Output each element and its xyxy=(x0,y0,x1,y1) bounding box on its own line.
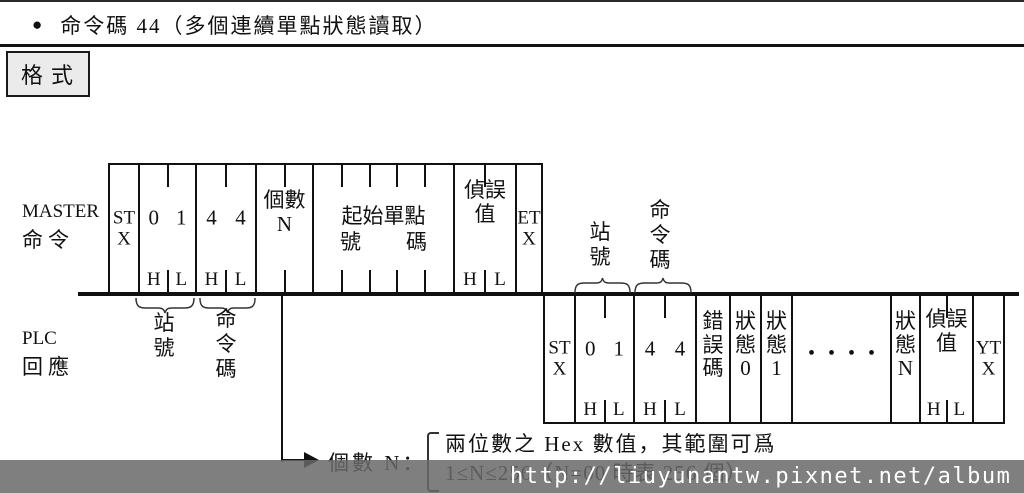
tick xyxy=(369,270,371,292)
manual-page: ● 命令碼 44（多個連續單點狀態讀取） 格式 MASTER 命令 PLC 回應… xyxy=(0,0,1024,493)
plc-etx-cell: YTX xyxy=(972,296,1003,422)
tick xyxy=(341,165,343,187)
plc-response-frame: STX 0 1 H L 4 4 H L xyxy=(543,296,1005,424)
low-byte-label: L xyxy=(168,269,196,291)
plc-status0-cell: 狀態0 xyxy=(729,296,760,422)
command-low-digit: 4 xyxy=(665,336,695,361)
master-start-point-cell: 起始單點 號 碼 xyxy=(312,165,453,292)
start-point-line1: 起始單點 xyxy=(314,202,453,228)
high-byte-label: H xyxy=(455,269,485,291)
high-byte-label: H xyxy=(921,399,947,421)
ellipsis-dots: •••• xyxy=(793,342,890,365)
checksum-label: 偵誤值 xyxy=(921,308,972,355)
checksum-label: 偵誤值 xyxy=(455,179,515,226)
master-command-annotation: 命令碼 xyxy=(214,307,238,381)
plc-error-code-cell: 錯誤碼 xyxy=(695,296,729,422)
master-row-label-cjk: 命令 xyxy=(22,228,99,253)
overbrace xyxy=(634,277,692,293)
watermark-url: http://liuyunantw.pixnet.net/album xyxy=(510,464,1011,489)
master-command-code-cell: 4 4 H L xyxy=(195,165,255,292)
plc-stx-cell: STX xyxy=(545,296,574,422)
plc-ellipsis-cell: •••• xyxy=(791,296,890,422)
station-low-digit: 1 xyxy=(605,336,634,361)
low-byte-label: L xyxy=(605,399,634,421)
status1-label: 狀態1 xyxy=(762,310,791,381)
plc-command-code-cell: 4 4 H L xyxy=(633,296,695,422)
bullet-icon: ● xyxy=(32,15,44,35)
tick xyxy=(664,400,666,422)
section-title-text: 命令碼 44（多個連續單點狀態讀取） xyxy=(60,10,437,40)
tick xyxy=(396,270,398,292)
overbrace xyxy=(574,277,631,293)
command-low-digit: 4 xyxy=(226,206,255,231)
master-row-label: MASTER 命令 xyxy=(22,201,99,253)
master-etx-cell: ETX xyxy=(515,165,541,292)
tick xyxy=(484,270,486,292)
error-code-label: 錯誤碼 xyxy=(697,310,729,381)
tick xyxy=(341,270,343,292)
tick xyxy=(167,270,169,292)
note-line1: 兩位數之 Hex 數值，其範圍可爲 xyxy=(445,428,777,458)
plc-row-label-en: PLC xyxy=(22,328,74,351)
etx-label: ETX xyxy=(517,207,541,250)
format-tab-label: 格式 xyxy=(21,58,81,90)
statusN-label: 狀態N xyxy=(892,310,919,381)
master-station-cell: 0 1 H L xyxy=(138,165,195,292)
station-high-digit: 0 xyxy=(140,206,168,231)
tick xyxy=(225,165,227,187)
start-point-label: 起始單點 號 碼 xyxy=(314,202,453,255)
tick xyxy=(396,165,398,187)
title-rule xyxy=(0,44,1024,47)
station-low-digit: 1 xyxy=(168,206,196,231)
tick xyxy=(369,165,371,187)
watermark-band: http://liuyunantw.pixnet.net/album xyxy=(0,460,1024,493)
plc-row-label-cjk: 回應 xyxy=(22,355,74,380)
etx-label: YTX xyxy=(974,338,1003,381)
high-byte-label: H xyxy=(576,399,605,421)
tick xyxy=(424,165,426,187)
plc-row-label: PLC 回應 xyxy=(22,328,74,380)
tick xyxy=(284,270,286,292)
stx-label: STX xyxy=(110,207,138,250)
command-high-digit: 4 xyxy=(635,336,665,361)
plc-station-cell: 0 1 H L xyxy=(574,296,633,422)
tick xyxy=(424,270,426,292)
format-tab: 格式 xyxy=(6,51,90,97)
stx-label: STX xyxy=(545,338,574,381)
master-stx-cell: STX xyxy=(110,165,138,292)
plc-checksum-cell: 偵誤值 H L xyxy=(919,296,972,422)
section-title: ● 命令碼 44（多個連續單點狀態讀取） xyxy=(32,10,438,40)
plc-station-annotation: 站號 xyxy=(588,220,612,270)
command-high-digit: 4 xyxy=(197,206,226,231)
tick xyxy=(225,270,227,292)
tick xyxy=(664,296,666,318)
plc-command-annotation: 命令碼 xyxy=(648,198,672,272)
master-row-label-en: MASTER xyxy=(22,201,99,224)
master-station-annotation: 站號 xyxy=(152,311,176,361)
top-edge-line xyxy=(0,0,1024,2)
plc-statusN-cell: 狀態N xyxy=(890,296,919,422)
low-byte-label: L xyxy=(485,269,515,291)
high-byte-label: H xyxy=(197,269,226,291)
high-byte-label: H xyxy=(140,269,168,291)
tick xyxy=(167,165,169,187)
tick xyxy=(604,400,606,422)
count-label: 個數N xyxy=(257,189,312,236)
master-count-cell: 個數N xyxy=(255,165,312,292)
master-command-frame: STX 0 1 H L 4 4 H L xyxy=(108,163,543,292)
low-byte-label: L xyxy=(947,399,973,421)
plc-status1-cell: 狀態1 xyxy=(760,296,791,422)
start-point-no: 號 xyxy=(340,229,361,255)
tick xyxy=(604,296,606,318)
start-point-ma: 碼 xyxy=(406,229,427,255)
low-byte-label: L xyxy=(226,269,255,291)
master-checksum-cell: 偵誤值 H L xyxy=(453,165,515,292)
status0-label: 狀態0 xyxy=(731,310,760,381)
tick xyxy=(284,165,286,187)
count-connector-line xyxy=(281,296,283,462)
low-byte-label: L xyxy=(665,399,695,421)
tick xyxy=(946,400,948,422)
high-byte-label: H xyxy=(635,399,665,421)
station-high-digit: 0 xyxy=(576,336,605,361)
